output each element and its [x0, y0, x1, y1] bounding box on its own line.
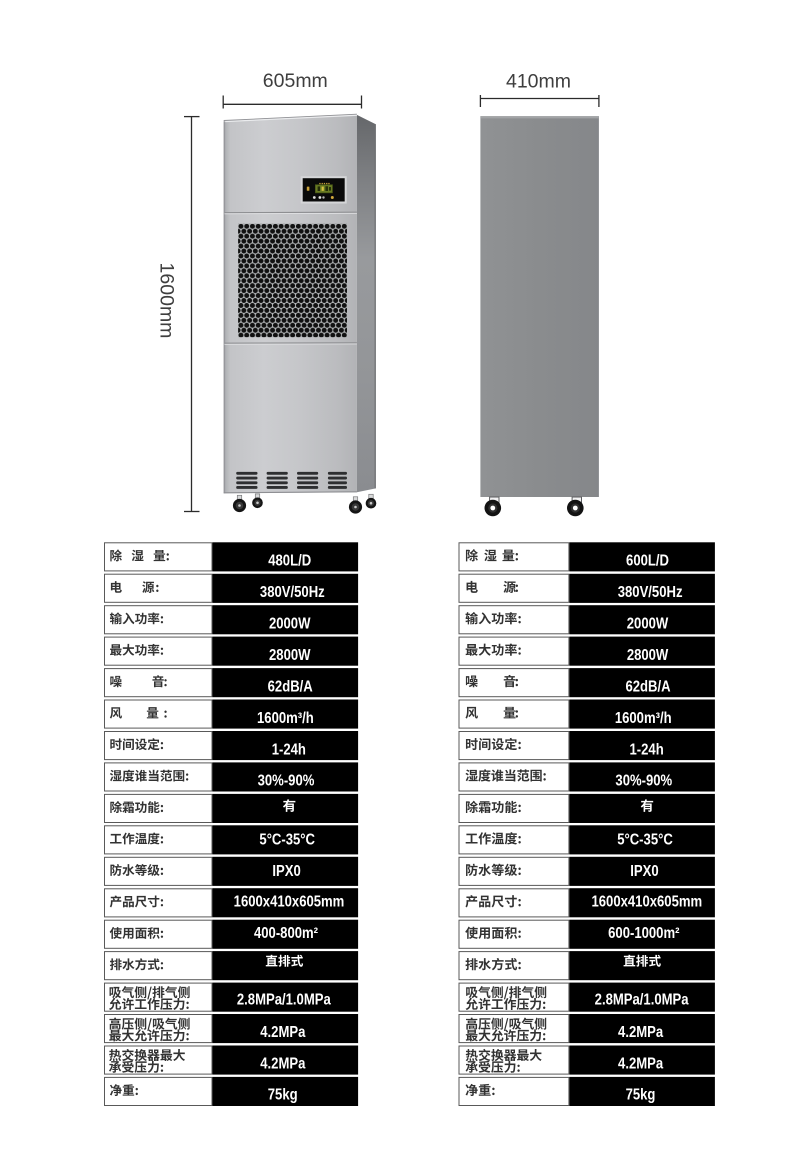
svg-text:1600m³/h: 1600m³/h	[257, 710, 314, 727]
svg-text:480L/D: 480L/D	[268, 553, 311, 570]
svg-text:1600x410x605mm: 1600x410x605mm	[591, 894, 702, 911]
svg-text:4.2MPa: 4.2MPa	[618, 1024, 664, 1041]
svg-text:380V/50Hz: 380V/50Hz	[260, 584, 325, 601]
svg-text:5°C-35°C: 5°C-35°C	[259, 832, 315, 849]
svg-text:2000W: 2000W	[269, 616, 311, 633]
svg-text:1600mm: 1600mm	[155, 263, 177, 339]
svg-text:1-24h: 1-24h	[630, 741, 664, 758]
svg-text:380V/50Hz: 380V/50Hz	[618, 584, 683, 601]
svg-text:IPX0: IPX0	[272, 863, 300, 880]
svg-text:2000W: 2000W	[627, 616, 669, 633]
svg-text:600-1000m²: 600-1000m²	[608, 925, 680, 942]
svg-text:605mm: 605mm	[263, 70, 328, 92]
svg-text:600L/D: 600L/D	[626, 553, 669, 570]
svg-text:400-800m²: 400-800m²	[254, 925, 318, 942]
svg-text:IPX0: IPX0	[630, 863, 658, 880]
svg-text:410mm: 410mm	[506, 71, 571, 93]
svg-text:75kg: 75kg	[268, 1086, 298, 1103]
svg-text:4.2MPa: 4.2MPa	[260, 1056, 306, 1073]
svg-text:1-24h: 1-24h	[272, 741, 306, 758]
svg-text:62dB/A: 62dB/A	[625, 678, 671, 695]
svg-text:4.2MPa: 4.2MPa	[618, 1056, 664, 1073]
svg-text:2.8MPa/1.0MPa: 2.8MPa/1.0MPa	[595, 992, 690, 1009]
svg-text:62dB/A: 62dB/A	[268, 678, 314, 695]
svg-text:2.8MPa/1.0MPa: 2.8MPa/1.0MPa	[237, 992, 332, 1009]
svg-text:5°C-35°C: 5°C-35°C	[617, 832, 673, 849]
svg-text:75kg: 75kg	[626, 1086, 656, 1103]
svg-text:2800W: 2800W	[269, 647, 311, 664]
svg-text:1600x410x605mm: 1600x410x605mm	[234, 894, 345, 911]
svg-text:4.2MPa: 4.2MPa	[260, 1024, 306, 1041]
svg-text:1600m³/h: 1600m³/h	[615, 710, 672, 727]
svg-text:2800W: 2800W	[627, 647, 669, 664]
svg-text:30%-90%: 30%-90%	[258, 773, 315, 790]
svg-text:30%-90%: 30%-90%	[615, 773, 672, 790]
